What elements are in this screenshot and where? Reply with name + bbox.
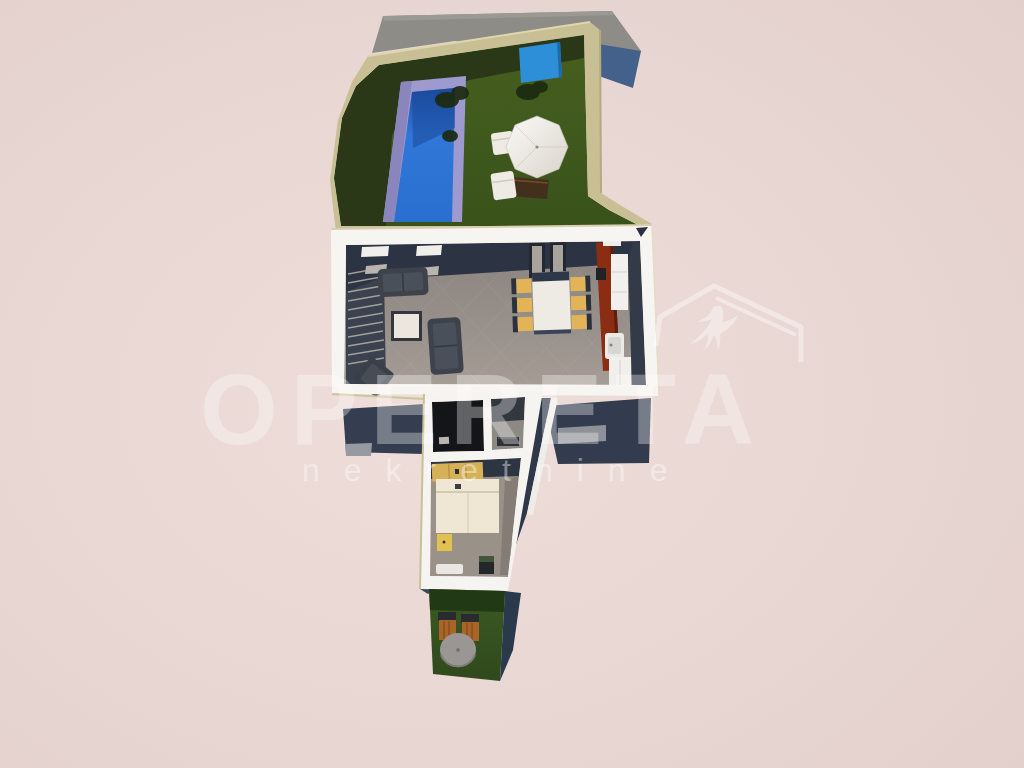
floor-plan-render: OPERETA nekretnine	[0, 0, 1024, 768]
kitchen-stove	[596, 268, 606, 280]
coffee-table	[391, 311, 422, 341]
sun-lounger	[490, 171, 517, 201]
dining-chairs-left	[511, 278, 533, 333]
bedroom-bench	[436, 564, 463, 574]
watermark-subtitle: nekretnine	[302, 452, 691, 488]
dining-set	[511, 271, 592, 336]
watermark-title: OPERETA	[200, 353, 767, 465]
parasol	[506, 116, 568, 178]
garden-table	[440, 633, 476, 667]
kitchen-tall-unit	[611, 254, 628, 310]
terrace-door	[519, 42, 562, 83]
render-canvas: OPERETA nekretnine	[0, 0, 1024, 768]
dining-chairs-right	[570, 276, 592, 331]
dresser	[479, 556, 494, 574]
sofa-top	[377, 267, 428, 298]
